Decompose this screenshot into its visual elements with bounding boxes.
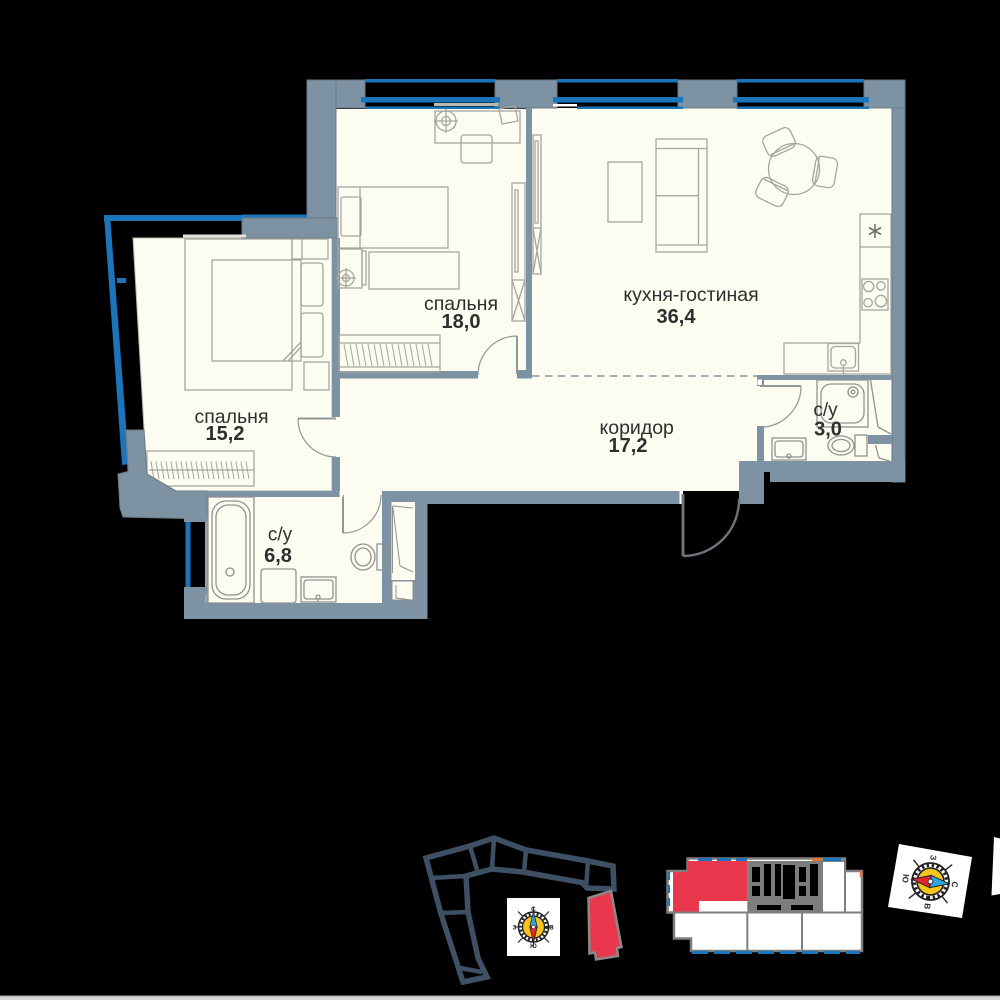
svg-text:С: С (949, 881, 960, 888)
svg-text:с/у: с/у (268, 525, 293, 546)
svg-text:Ю: Ю (530, 943, 537, 950)
svg-text:18,0: 18,0 (442, 311, 481, 333)
svg-text:36,4: 36,4 (657, 306, 697, 328)
svg-text:Ю: Ю (900, 873, 911, 883)
svg-text:С: С (531, 906, 536, 913)
svg-text:17,2: 17,2 (609, 435, 648, 457)
svg-text:В: В (922, 903, 933, 910)
svg-text:6,8: 6,8 (264, 545, 292, 567)
svg-text:3,0: 3,0 (814, 419, 842, 441)
svg-text:кухня-гостиная: кухня-гостиная (623, 284, 758, 306)
svg-text:15,2: 15,2 (206, 423, 245, 445)
svg-text:В: В (549, 924, 554, 931)
svg-text:З: З (512, 924, 516, 931)
